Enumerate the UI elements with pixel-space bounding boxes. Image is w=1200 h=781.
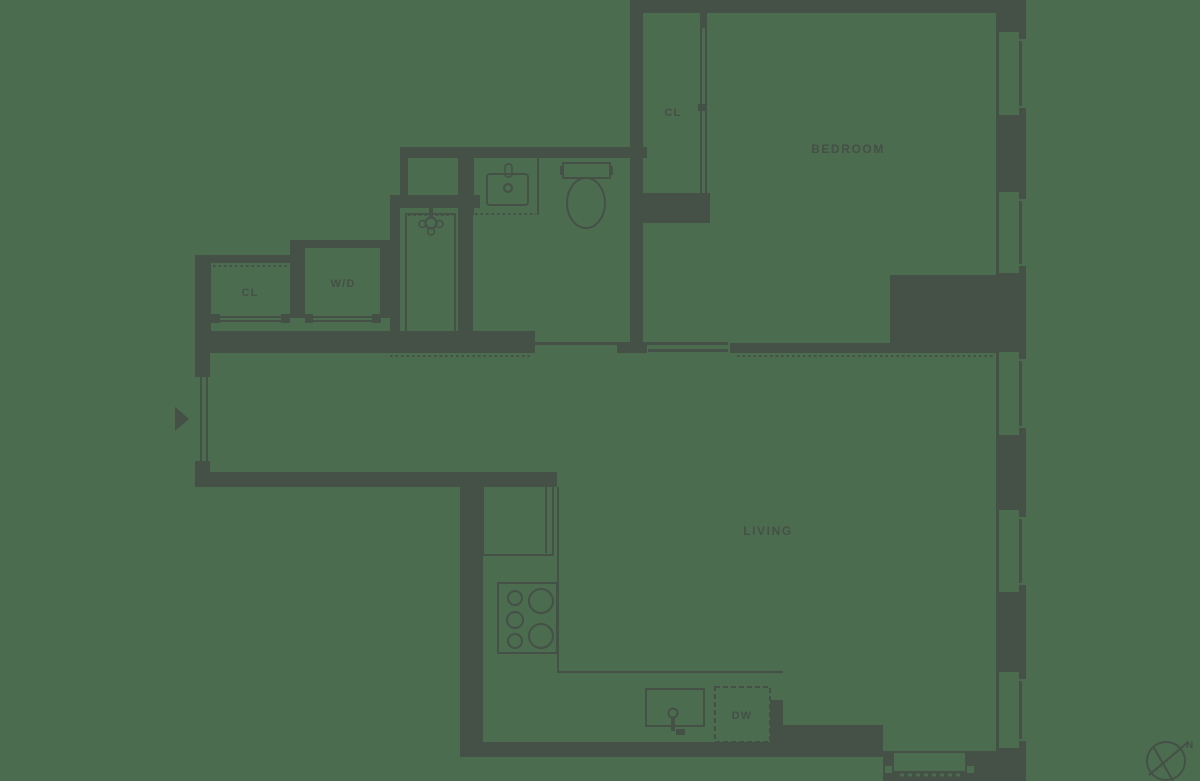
wall-right-pier bbox=[996, 115, 1026, 192]
wall-bath-bedroom-divider bbox=[630, 0, 643, 353]
kitchen-sink-icon bbox=[646, 689, 704, 735]
wall-hall-closet-left bbox=[195, 255, 211, 331]
compass-icon bbox=[1147, 742, 1187, 781]
hall-closet-door bbox=[211, 314, 290, 323]
vanity-sink-icon bbox=[473, 158, 538, 215]
bedroom-closet-door bbox=[698, 28, 707, 193]
window bbox=[996, 510, 1026, 592]
wall-right-pier bbox=[996, 592, 1026, 672]
wall-corridor-top bbox=[195, 331, 535, 353]
wall-right-pier bbox=[996, 748, 1026, 781]
shower-icon bbox=[406, 206, 455, 332]
window bbox=[996, 32, 1026, 115]
labels: BEDROOM LIVING CL CL W/D DW N bbox=[241, 107, 1193, 751]
wall-right-pier bbox=[996, 273, 1026, 352]
toilet-icon bbox=[560, 163, 613, 228]
wall-wd-top bbox=[290, 240, 390, 248]
living-label: LIVING bbox=[743, 524, 793, 538]
walls bbox=[195, 0, 1026, 781]
window bbox=[996, 192, 1026, 273]
entry-door bbox=[200, 377, 208, 461]
wall-cl-wd-divider bbox=[290, 240, 305, 318]
bathroom-door bbox=[535, 342, 728, 345]
bedroom-closet-label: CL bbox=[664, 107, 681, 119]
bedroom-door bbox=[648, 349, 728, 352]
dishwasher-label: DW bbox=[732, 710, 753, 722]
wall-bedroom-closet-bottom bbox=[630, 193, 710, 223]
washer-dryer-label: W/D bbox=[331, 278, 356, 290]
wall-wd-right bbox=[380, 240, 390, 318]
counter-edge-vertical bbox=[557, 487, 559, 673]
wall-kitchen-left bbox=[460, 487, 483, 757]
kitchen-fixtures bbox=[483, 485, 783, 742]
wall-right-pier bbox=[996, 0, 1026, 32]
bedroom-label: BEDROOM bbox=[811, 142, 885, 156]
wall-right-pier bbox=[996, 435, 1026, 510]
wall-bathroom-top bbox=[400, 147, 647, 158]
wall-bedroom-closet-jamb bbox=[700, 13, 707, 28]
entry-arrow-icon bbox=[175, 407, 189, 431]
wall-entry-upper bbox=[195, 331, 210, 377]
doors bbox=[175, 28, 728, 461]
refrigerator-icon bbox=[483, 485, 553, 555]
wall-shower-vanity-divider bbox=[458, 158, 473, 340]
wd-closet-door bbox=[305, 314, 381, 323]
hall-closet-label: CL bbox=[241, 287, 258, 299]
wall-kitchen-bottom bbox=[460, 742, 790, 757]
compass-north-label: N bbox=[1186, 740, 1193, 751]
bathroom-fixtures bbox=[406, 158, 613, 332]
window bbox=[996, 352, 1026, 435]
wall-shower-left bbox=[390, 195, 400, 335]
counter-edge-horizontal bbox=[557, 671, 783, 673]
window bbox=[996, 672, 1026, 748]
wall-counter-return bbox=[770, 700, 783, 742]
wall-bedroom-top bbox=[643, 0, 997, 13]
wall-bottom-step bbox=[782, 725, 883, 757]
floor-plan: BEDROOM LIVING CL CL W/D DW N bbox=[0, 0, 1200, 781]
range-burners-icon bbox=[498, 583, 557, 653]
